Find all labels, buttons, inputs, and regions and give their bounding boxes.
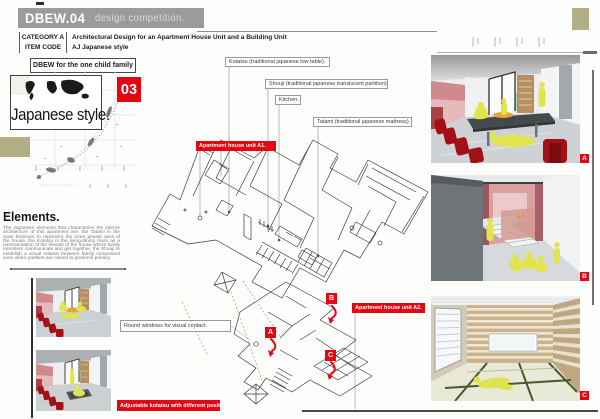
- plan-marker-a: A: [265, 327, 276, 338]
- right-rule-tip: [583, 51, 597, 54]
- page-subtitle: design competition.: [95, 13, 185, 24]
- olive-square-top-right: [572, 8, 589, 30]
- category-divider-left: [19, 32, 20, 53]
- caption-adjustable-kotatsu: Adjustable kotatsu with different positi…: [117, 400, 220, 411]
- family-note-box: DBEW for the one child family: [30, 58, 136, 73]
- elements-divider-bar: [10, 268, 126, 270]
- plan-marker-c: C: [325, 350, 336, 361]
- item-code-label: ITEM CODE: [21, 43, 65, 53]
- title-bar: DBEW.04 design competition.: [18, 8, 204, 28]
- faint-marks: [472, 37, 552, 48]
- photo-badge-c: C: [580, 391, 589, 400]
- bottom-rule: [302, 410, 598, 412]
- competition-board: DBEW.04 design competition. CATEGORY A A…: [0, 0, 600, 419]
- elements-heading: Elements.: [3, 209, 60, 224]
- photo-badge-a: A: [580, 154, 589, 163]
- callout-shouji: Shouji (traditional japanese translucent…: [265, 79, 388, 89]
- corner-dash: [36, 2, 44, 5]
- render-a-photo: [431, 55, 580, 163]
- right-photo-rule: [592, 70, 594, 305]
- olive-strip-left: [0, 137, 30, 157]
- callout-kotatsu: Kotatsu (traditional japanese low table)…: [225, 57, 330, 67]
- label-unit-a2: Apartment house unit A2.: [352, 303, 425, 313]
- category-label: CATEGORY A: [21, 33, 65, 43]
- callout-tatami: Tatami (traditional japanese mattress).: [313, 117, 412, 127]
- style-title: Japanese style.: [11, 105, 110, 125]
- header-rule: [197, 31, 437, 32]
- elements-paragraph: The Japanese elements that characterize …: [3, 227, 120, 261]
- page-title: DBEW.04: [25, 11, 85, 26]
- label-unit-a1: Apartment house unit A1.: [196, 141, 276, 151]
- left-photo-rule: [31, 278, 33, 418]
- right-rule: [437, 52, 583, 53]
- callout-kitchen: Kitchen.: [275, 95, 301, 105]
- item-code-value: AJ Japanese style: [72, 43, 128, 53]
- plan-marker-b: B: [326, 293, 337, 304]
- render-b-photo: [431, 175, 580, 281]
- world-map-icon: [15, 79, 99, 101]
- category-value: Architectural Design for an Apartment Ho…: [72, 33, 287, 43]
- render-c-photo: [431, 296, 580, 401]
- caption-round-windows: Round windows for visual contact.: [120, 320, 231, 332]
- photo-kotatsu-raised: [36, 278, 111, 337]
- photo-kotatsu-sunken: [36, 350, 111, 411]
- category-divider-mid: [66, 32, 67, 53]
- photo-badge-b: B: [580, 272, 589, 281]
- page-number-badge: 03: [117, 77, 141, 102]
